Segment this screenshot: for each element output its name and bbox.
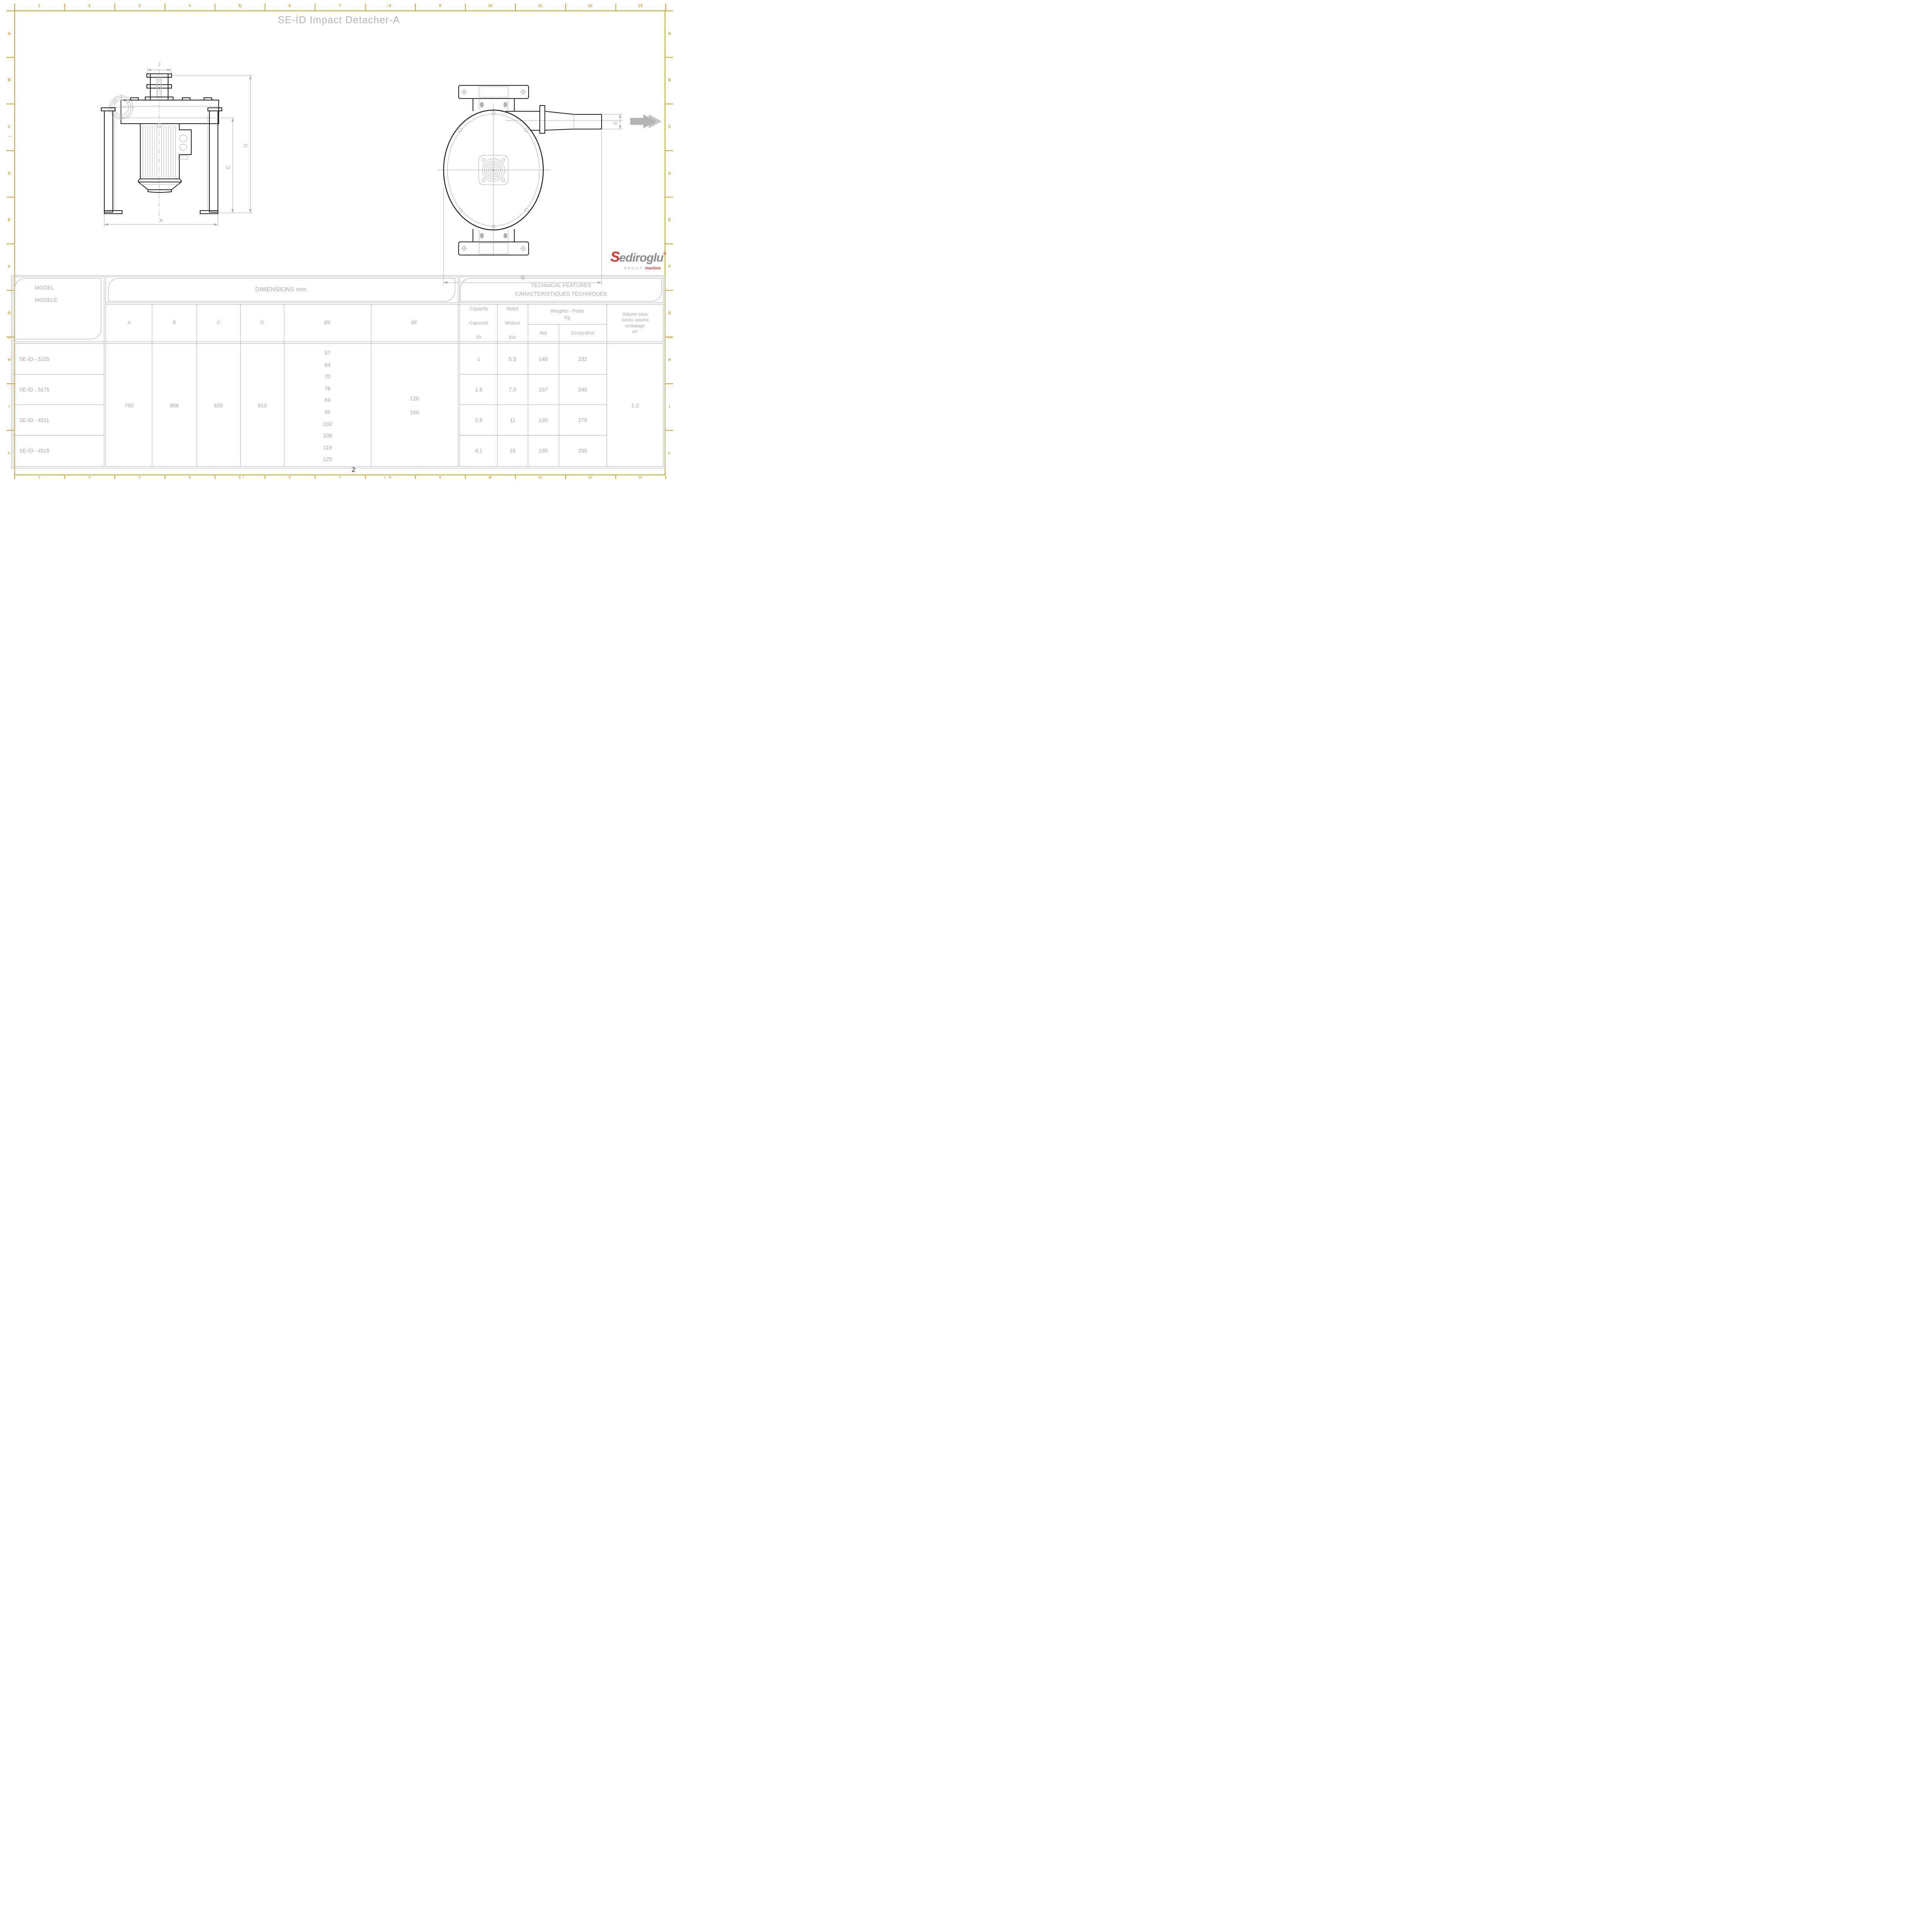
page-number: 2: [332, 466, 375, 474]
grid-col-label: 3: [114, 3, 165, 9]
grid-col-label: 8: [365, 3, 415, 9]
grid-row-label: G: [6, 290, 13, 337]
capacity-value: 2.8: [460, 405, 497, 435]
gross-value: 240: [559, 374, 607, 405]
center-mark-arrow-icon: ↑: [242, 474, 245, 479]
grid-row-label: F: [6, 243, 13, 290]
weights-unit: Kg: [564, 315, 570, 320]
model-header: MODELE: [35, 297, 58, 303]
motor-value: 7.5: [497, 374, 528, 405]
col-header-c: C: [197, 309, 240, 336]
grid-col-label: 10: [465, 476, 515, 479]
col-header-of: ØF: [371, 309, 458, 336]
grid-row-label: L: [666, 430, 673, 476]
technical-header: CARACTERISTIQUES TECHNIQUES: [515, 291, 607, 297]
capacity-header: Capacity: [469, 306, 488, 311]
col-header-d: D: [240, 309, 284, 336]
grid-col-label: 7: [315, 3, 365, 9]
page-title: SE-İD Impact Detacher-A: [0, 14, 678, 26]
motor: [138, 124, 191, 192]
dimension-c: C: [219, 118, 235, 213]
technical-header: TECHNICAL FEATURES: [531, 282, 591, 288]
model-row: SE-İD - 5155: [15, 344, 102, 374]
model-row: SE-İD - 4511: [15, 405, 102, 435]
net-value: 148: [528, 344, 559, 374]
housing-body: [121, 98, 219, 128]
dimension-a: A: [104, 214, 218, 227]
net-value: 195: [528, 435, 559, 466]
grid-row-label: B: [6, 57, 13, 104]
grid-col-label: 8: [365, 476, 415, 479]
grid-col-label: 1: [14, 3, 65, 9]
dim-oe-values: 5764 7076 8395 102108 119125: [284, 347, 371, 465]
front-view-drawing: E B: [423, 71, 678, 296]
grid-col-label: 12: [565, 476, 616, 479]
gross-value: 232: [559, 344, 607, 374]
center-mark-arrow-icon: ↓: [383, 474, 386, 479]
center-mark-arrow-icon: ↑: [386, 3, 389, 9]
dim-c-value: 620: [197, 344, 240, 466]
grid-col-label: 5: [215, 476, 265, 479]
net-header: Net: [528, 325, 559, 342]
motor-unit: Kw: [509, 335, 516, 340]
table-separator: [104, 277, 106, 467]
col-header-b: B: [152, 309, 197, 336]
svg-text:C: C: [225, 165, 231, 169]
weights-header: Weights - Poids: [550, 308, 584, 314]
gross-header: Gross-Brut: [559, 325, 607, 342]
grid-row-label: D: [6, 150, 13, 197]
grid-row-label: I: [6, 383, 13, 430]
grid-col-label: 9: [415, 476, 465, 479]
grid-col-label: 9: [415, 3, 465, 9]
col-header-oe: ØE: [284, 309, 371, 336]
grid-row-label: L: [6, 430, 13, 476]
net-value: 157: [528, 374, 559, 405]
capacity-value: 1.6: [460, 374, 497, 405]
volume-header: Volume sous: [622, 312, 648, 317]
motor-value: 5.5: [497, 344, 528, 374]
volume-header: embalage: [625, 324, 645, 328]
capacity-value: 1: [460, 344, 497, 374]
center-mark-arrow-icon: →: [7, 133, 13, 138]
grid-row-label: G: [666, 290, 673, 337]
grid-col-label: 1: [14, 476, 65, 479]
grid-col-label: 2: [65, 3, 115, 9]
grid-col-label: 6: [265, 3, 315, 9]
gross-value: 290: [559, 435, 607, 466]
motor-value: 11: [497, 405, 528, 435]
motor-value: 15: [497, 435, 528, 466]
grid-row-label: H: [6, 337, 13, 383]
grid-col-label: 6: [265, 476, 315, 479]
grid-col-label: 13: [615, 3, 665, 9]
grid-col-label: 4: [165, 476, 215, 479]
dim-b-value: 806: [152, 344, 197, 466]
volume-unit: m³: [633, 330, 638, 334]
grid-col-label: 7: [315, 476, 365, 479]
capacity-header: Capacité: [469, 320, 488, 326]
svg-text:E: E: [612, 121, 618, 124]
model-row: SE-İD - 4515: [15, 435, 102, 466]
dim-a-value: 700: [107, 344, 152, 466]
capacity-unit: t/h: [476, 335, 481, 340]
grid-col-label: 11: [515, 476, 565, 479]
center-mark-arrow-icon: ↓: [240, 3, 243, 9]
capacity-value: 4,1: [460, 435, 497, 466]
grid-row-label: C: [6, 104, 13, 150]
volume-header: Gross volume: [621, 318, 649, 323]
flow-arrow-icon: [630, 114, 662, 128]
motor-header: Motor: [507, 306, 519, 311]
table-separator: [13, 342, 663, 344]
grid-row-label: I: [666, 383, 673, 430]
table-separator: [458, 277, 460, 467]
center-mark-arrow-icon: ←: [7, 334, 13, 340]
svg-text:D: D: [243, 144, 248, 147]
col-header-a: A: [107, 309, 152, 336]
dim-of-values: 120 150: [371, 344, 458, 466]
center-mark-arrow-icon: →: [667, 334, 673, 340]
gross-value: 275: [559, 405, 607, 435]
grid-col-label: 3: [114, 476, 165, 479]
grid-col-label: 10: [465, 3, 515, 9]
volume-value: 1.2: [607, 344, 663, 466]
grid-row-label: E: [6, 197, 13, 243]
dim-d-value: 913: [240, 344, 284, 466]
dimension-e: E: [602, 114, 622, 129]
grid-col-label: 13: [615, 476, 665, 479]
grid-col-label: 4: [165, 3, 215, 9]
grid-col-label: 11: [515, 3, 565, 9]
grid-col-label: 2: [65, 476, 115, 479]
svg-text:J: J: [158, 61, 161, 67]
model-header: MODEL: [35, 284, 54, 291]
dimension-b: B: [444, 131, 602, 285]
dimensions-header: DIMENSIONS mm.: [255, 286, 308, 293]
motor-header: Moteur: [505, 320, 520, 326]
svg-text:A: A: [160, 218, 163, 223]
side-view-drawing: J A C D: [97, 60, 282, 234]
grid-row-label: H: [666, 337, 673, 383]
grid-col-label: 12: [565, 3, 616, 9]
drawing-sheet: 1 2 3 4 5 6 7 8 9 10 11 12 13 1 2 3 4 5 …: [0, 0, 678, 479]
model-row: SE-İD - 5175: [15, 374, 102, 405]
net-value: 190: [528, 405, 559, 435]
